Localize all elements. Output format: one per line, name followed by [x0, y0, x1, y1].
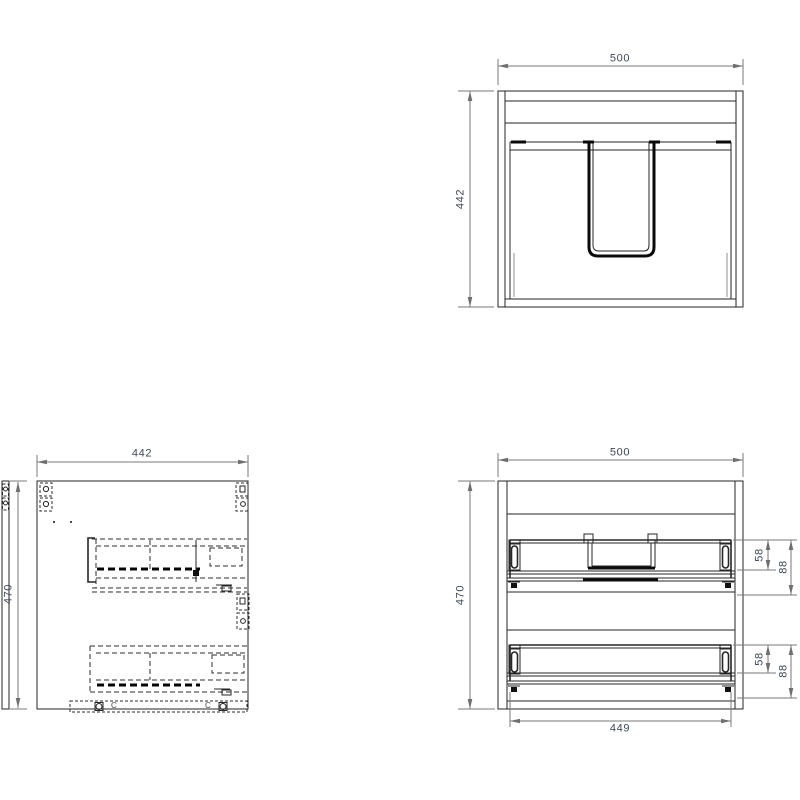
upper-right-slide-clip [720, 540, 731, 570]
dim-label-upper-box: 88 [779, 560, 790, 573]
upper-drawer-feet [508, 582, 734, 588]
dim-label-front-width: 500 [610, 448, 630, 459]
plan-view [458, 59, 743, 307]
mounting-holes-top-right [236, 483, 248, 511]
front-view [458, 453, 797, 727]
plan-dimension-lines [458, 59, 743, 307]
mounting-holes-mid-right [237, 594, 249, 629]
dim-label-drawer-width: 449 [610, 724, 630, 735]
dim-label-lower-box: 88 [779, 664, 790, 677]
upper-drawer-box [507, 534, 735, 588]
lower-drawer-runner-hidden [90, 646, 247, 695]
mounting-holes-top-left [40, 483, 52, 511]
upper-drawer-runner-hidden [88, 538, 247, 592]
lower-drawer-box [507, 645, 735, 692]
drawing-canvas [0, 0, 800, 800]
dim-label-plan-height: 442 [456, 189, 467, 209]
sink-cutout [511, 142, 731, 256]
bottom-cam-fittings [70, 701, 247, 712]
plan-inner-panel [510, 142, 731, 299]
cam-fitting-label-right: C [205, 702, 211, 710]
technical-drawing-sheet: 500 442 442 470 C C 500 470 449 58 88 58… [0, 0, 800, 800]
dim-label-side-height: 470 [4, 584, 15, 604]
cam-fitting-label-left: C [111, 702, 117, 710]
side-view [2, 455, 249, 712]
plumbing-notch [584, 534, 657, 568]
dim-label-lower-runner: 58 [755, 652, 766, 665]
dim-label-side-width: 442 [132, 449, 152, 460]
lower-right-slide-clip [720, 645, 731, 674]
dim-label-plan-width: 500 [610, 54, 630, 65]
dim-label-front-height: 470 [456, 585, 467, 605]
lower-drawer-feet [508, 686, 734, 692]
side-panel-outline [37, 481, 248, 709]
dim-label-upper-runner: 58 [755, 548, 766, 561]
